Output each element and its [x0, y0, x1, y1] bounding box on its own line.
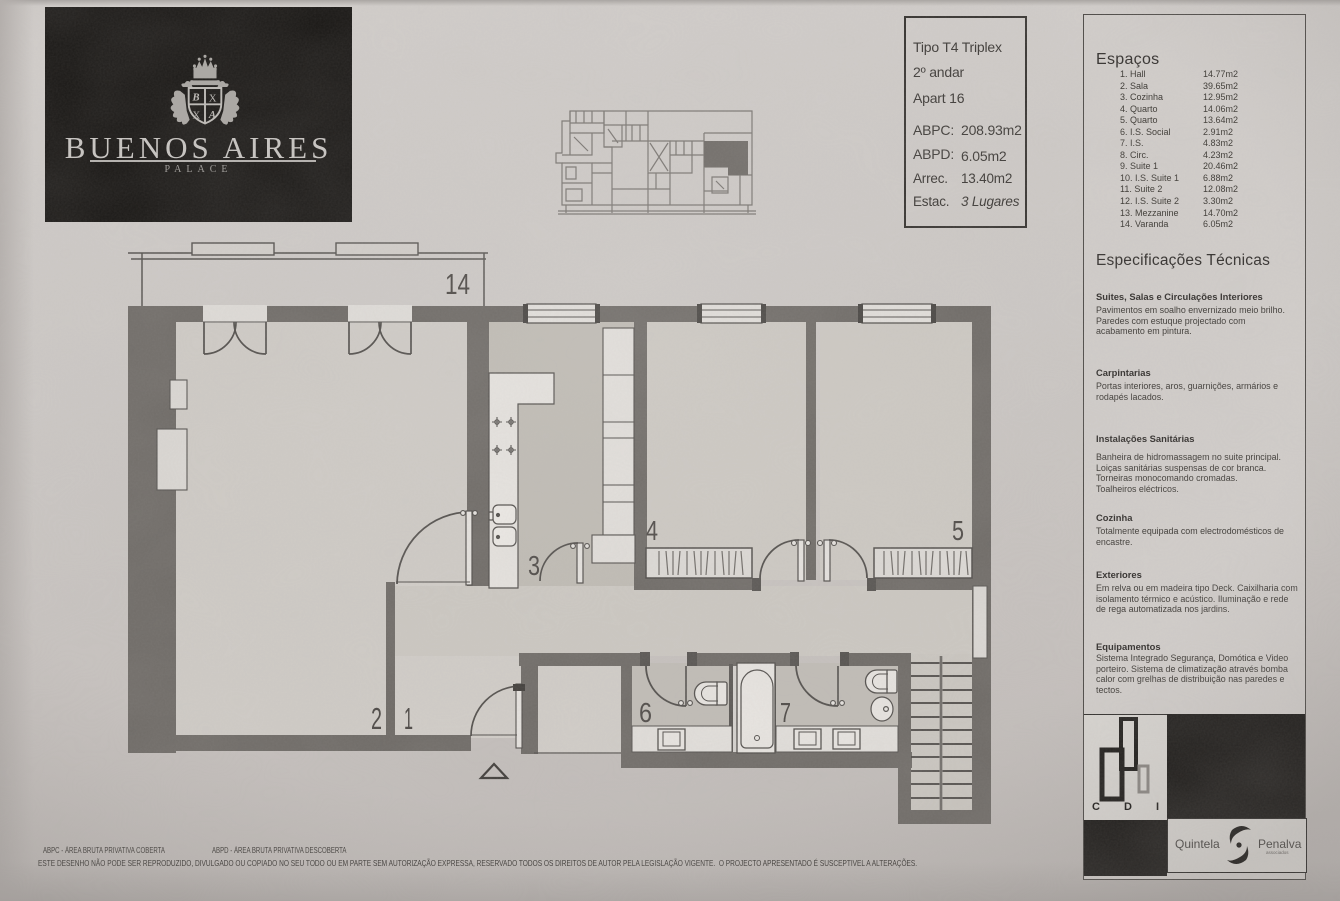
svg-text:I: I [1156, 801, 1159, 813]
svg-text:4: 4 [646, 515, 658, 546]
svg-text:3: 3 [528, 550, 540, 581]
svg-text:6: 6 [639, 697, 652, 728]
svg-text:1: 1 [404, 701, 413, 736]
svg-text:2: 2 [371, 701, 382, 736]
svg-text:7: 7 [780, 697, 791, 728]
svg-text:14: 14 [445, 269, 470, 301]
svg-text:D: D [1124, 801, 1132, 813]
svg-text:C: C [1092, 801, 1100, 813]
svg-text:5: 5 [952, 515, 964, 546]
